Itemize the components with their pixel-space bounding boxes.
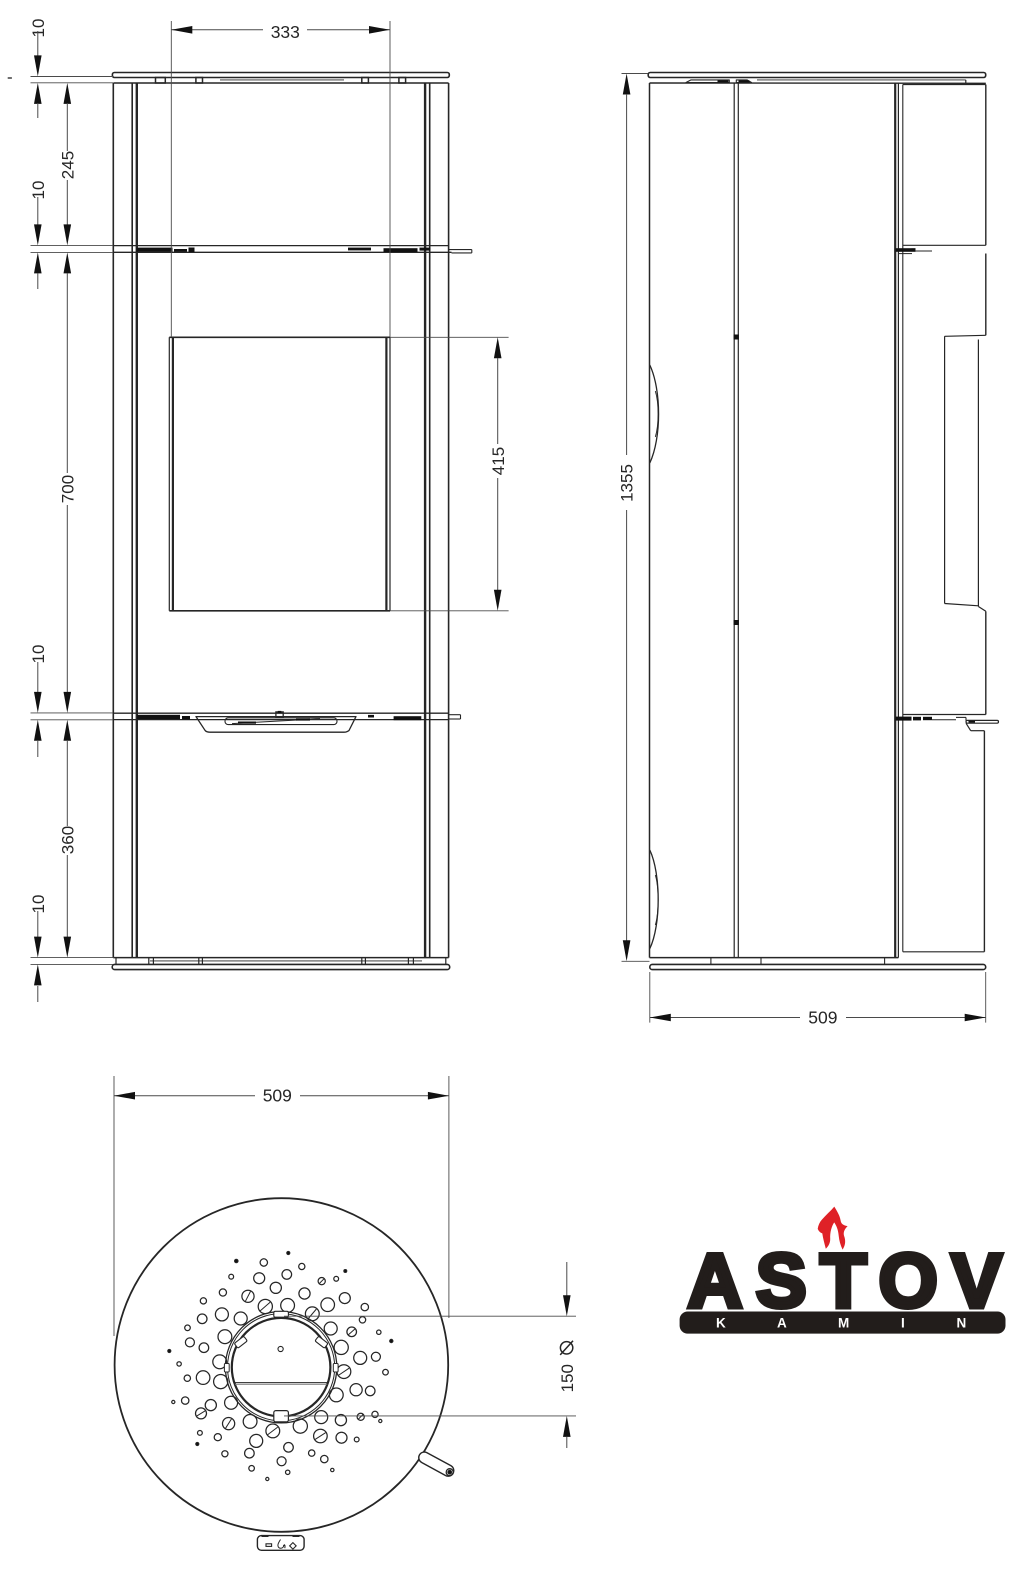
svg-text:333: 333 bbox=[271, 22, 300, 42]
svg-text:509: 509 bbox=[263, 1086, 292, 1106]
svg-text:ASTOV: ASTOV bbox=[688, 1239, 1016, 1324]
svg-text:150: 150 bbox=[558, 1364, 577, 1392]
svg-text:10: 10 bbox=[29, 895, 48, 914]
svg-text:509: 509 bbox=[808, 1007, 837, 1027]
svg-text:415: 415 bbox=[489, 447, 508, 475]
svg-text:10: 10 bbox=[29, 19, 48, 38]
svg-text:360: 360 bbox=[58, 826, 77, 854]
svg-text:245: 245 bbox=[58, 151, 77, 179]
svg-text:K A M I N: K A M I N bbox=[716, 1316, 990, 1331]
svg-text:10: 10 bbox=[29, 181, 48, 200]
svg-text:10: 10 bbox=[29, 645, 48, 664]
svg-text:700: 700 bbox=[58, 475, 77, 503]
svg-text:1355: 1355 bbox=[618, 464, 637, 502]
